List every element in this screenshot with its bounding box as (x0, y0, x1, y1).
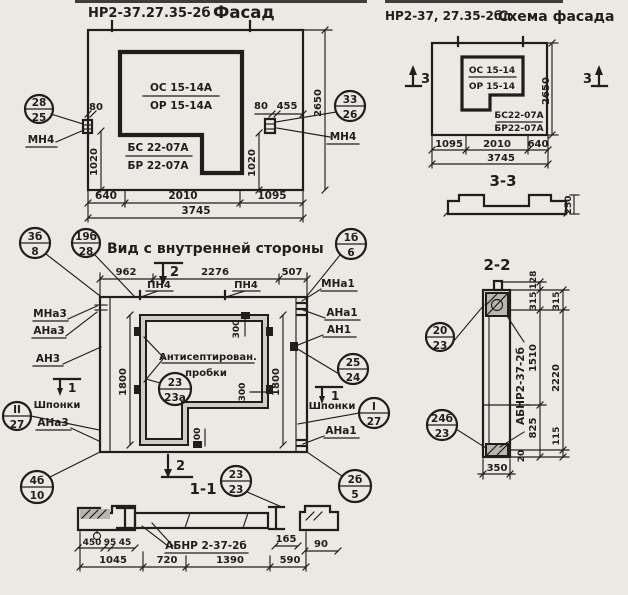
leader (307, 452, 342, 476)
dim-1020-left: 1020 (89, 148, 100, 176)
leader (66, 312, 97, 336)
svg-text:II: II (13, 404, 21, 416)
leader (71, 428, 99, 441)
svg-text:27: 27 (367, 416, 382, 428)
opening-mark-bottom: ОР 15-14А (150, 100, 213, 112)
arrow-up-icon (409, 65, 417, 75)
scan-streaks (75, 0, 563, 3)
svg-text:23: 23 (433, 340, 448, 352)
leader (63, 347, 101, 364)
dim-2650-scheme: 2650 (541, 77, 552, 105)
label-an1: АН1 (327, 324, 351, 336)
dim-450: 450 (83, 538, 102, 548)
dim-128: 128 (529, 271, 539, 290)
dim-300: 300 (238, 383, 248, 402)
dim-2010-scheme: 2010 (483, 139, 511, 150)
label-ana1-bottom: АНа1 (325, 425, 356, 437)
svg-text:8: 8 (31, 246, 38, 258)
dim-315-inner: 315 (529, 292, 539, 311)
svg-text:28: 28 (32, 97, 47, 109)
svg-text:1б: 1б (344, 232, 359, 244)
label-shponki-left: Шпонки (34, 400, 81, 411)
scheme-panel-mark-bottom: БР22-07А (494, 124, 543, 134)
dim-1045: 1045 (99, 555, 127, 566)
scheme-panel-mark-top: БС22-07А (494, 111, 543, 121)
svg-text:19б: 19б (75, 231, 97, 243)
svg-text:3б: 3б (28, 231, 43, 243)
arrow-up-icon (595, 65, 603, 75)
facade-title-code: НР2-37.27.35-2б (88, 6, 211, 21)
svg-text:26: 26 (343, 109, 358, 121)
frame-clip (134, 327, 141, 336)
svg-text:6: 6 (347, 247, 354, 259)
label-mna1: МНа1 (321, 278, 355, 290)
svg-text:2: 2 (170, 265, 179, 280)
inner-opening-frame (140, 315, 268, 445)
leader (453, 305, 484, 342)
leader (146, 379, 160, 383)
label-ana3-bottom: АНа3 (37, 417, 68, 429)
callout-24b-23: 24б 23 (427, 410, 486, 448)
dim-2276: 2276 (201, 267, 229, 278)
dim-1800-right: 1800 (271, 368, 282, 396)
svg-text:25: 25 (346, 357, 361, 369)
note-antiseptic: Антисептирован. (159, 352, 257, 363)
svg-text:23: 23 (229, 469, 244, 481)
callout-28-25: 28 25 (25, 95, 83, 124)
dim-95: 95 (104, 538, 117, 548)
facade-drawing: НР2-37.27.35-2б Фасад ОС 15-14А ОР 15-14… (25, 3, 365, 222)
i-beam-right (269, 507, 284, 529)
panel-mark-bottom: БР 22-07А (127, 160, 189, 172)
i-beam-left (117, 508, 133, 528)
frame-clip (266, 327, 273, 336)
pn4-label-right: ПН4 (234, 280, 258, 291)
right-end-block (300, 506, 338, 530)
section-2-2-title: 2-2 (483, 256, 510, 274)
facade-opening (120, 52, 242, 173)
dim-20: 20 (517, 450, 527, 463)
bottom-joint-block (486, 444, 508, 456)
pn4-label-left: ПН4 (147, 280, 171, 291)
dim-3745: 3745 (181, 205, 210, 217)
svg-text:25: 25 (32, 112, 47, 124)
section-3-3-title: 3-3 (489, 172, 516, 190)
dim-80-right: 80 (254, 101, 268, 112)
svg-text:20: 20 (433, 325, 448, 337)
svg-text:23: 23 (168, 377, 183, 389)
svg-text:2б: 2б (348, 474, 363, 486)
svg-text:23а: 23а (164, 392, 186, 404)
label-mna3: МНа3 (33, 308, 67, 320)
callout-20-23: 20 23 (426, 305, 484, 352)
svg-text:I: I (372, 401, 376, 413)
svg-text:24: 24 (346, 372, 361, 384)
label-shponki-right: Шпонки (309, 401, 356, 412)
label-abnr: АБНР 2-37-2б (165, 540, 247, 552)
dim-1095: 1095 (257, 190, 286, 202)
section-1-1: 450 95 45 АБНР 2-37-2б 165 90 1045 720 1… (75, 506, 341, 571)
svg-text:1: 1 (68, 381, 76, 395)
dim-825: 825 (528, 418, 539, 439)
panel-mark-top: БС 22-07А (127, 142, 189, 154)
leader (68, 306, 97, 319)
label-ana1-top: АНа1 (326, 307, 357, 319)
inner-view-title: Вид с внутренней стороны (107, 241, 324, 257)
note-plugs: пробки (185, 367, 227, 379)
leader (298, 335, 323, 345)
inner-view: 3б 8 19б 28 Вид с внутренней стороны 1б … (3, 228, 389, 507)
callout-19b-28: 19б 28 (72, 229, 134, 296)
section-marker-3-left: 3 (406, 65, 430, 87)
anchor-mn4-right (265, 119, 275, 133)
leader (296, 348, 339, 374)
anchor-label-mn4-left: МН4 (28, 134, 55, 146)
label-an3: АН3 (36, 353, 60, 365)
svg-text:23: 23 (229, 484, 244, 496)
dim-350: 350 (487, 463, 508, 474)
dim-1390: 1390 (216, 555, 244, 566)
dim-962: 962 (116, 267, 137, 278)
scheme-opening-mark-top: ОС 15-14 (469, 66, 515, 76)
callout-23-23: 23 23 (221, 466, 282, 507)
dim-300: 300 (193, 428, 203, 447)
section-3-3-profile (448, 195, 566, 214)
dim-1510: 1510 (528, 344, 539, 372)
dim-90: 90 (314, 539, 328, 550)
drawing-sheet: НР2-37.27.35-2б Фасад ОС 15-14А ОР 15-14… (0, 0, 628, 595)
dim-165: 165 (276, 534, 297, 545)
scheme-opening-mark-bottom: ОР 15-14 (469, 82, 515, 92)
dim-2010: 2010 (168, 190, 197, 202)
svg-text:23: 23 (435, 428, 450, 440)
section-marker-2-bottom: 2 (162, 455, 192, 478)
section-marker-1-left: 1 (54, 379, 80, 396)
scheme-title-code: НР2-37, 27.35-2бл (385, 9, 511, 23)
dim-1095-scheme: 1095 (435, 139, 463, 150)
dim-2650: 2650 (313, 89, 324, 117)
dim-590: 590 (280, 555, 301, 566)
dim-250: 250 (564, 196, 574, 215)
svg-text:3: 3 (421, 72, 430, 87)
dim-640-scheme: 640 (528, 139, 549, 150)
dim-455: 455 (277, 101, 298, 112)
svg-text:4б: 4б (30, 475, 45, 487)
section-2-2: 2-2 АБНР2-37-2б 20 23 (426, 256, 569, 479)
leader (46, 254, 100, 296)
blueprint-svg: НР2-37.27.35-2б Фасад ОС 15-14А ОР 15-14… (0, 0, 628, 595)
dim-45: 45 (119, 538, 132, 548)
dim-640: 640 (95, 190, 117, 202)
leader (56, 130, 84, 142)
dim-2220: 2220 (551, 364, 562, 392)
section-marker-3-right: 3 (583, 65, 607, 87)
svg-text:33: 33 (343, 94, 358, 106)
top-joint-block (486, 293, 508, 316)
callout-4b-10: 4б 10 (21, 452, 100, 503)
label-ana3-top: АНа3 (33, 325, 64, 337)
leader (500, 432, 524, 447)
svg-text:3: 3 (583, 72, 592, 87)
anchor-label-mn4-right: МН4 (330, 131, 357, 143)
opening-mark-top: ОС 15-14А (150, 82, 213, 94)
leader (50, 452, 100, 477)
frame-clip (134, 385, 141, 394)
dim-315-outer: 315 (552, 292, 562, 311)
svg-text:28: 28 (79, 246, 94, 258)
leader (247, 492, 282, 507)
facade-title: Фасад (213, 3, 275, 22)
svg-text:5: 5 (351, 489, 358, 501)
key-tab (290, 342, 298, 351)
facade-scheme: НР2-37, 27.35-2бл Схема фасада ОС 15-14 … (385, 9, 614, 216)
dim-720: 720 (157, 555, 178, 566)
dim-3745-scheme: 3745 (487, 153, 515, 164)
dim-1020-right: 1020 (247, 149, 258, 177)
svg-text:24б: 24б (431, 413, 453, 425)
callout-2b-5: 2б 5 (307, 452, 371, 502)
dim-507: 507 (282, 267, 303, 278)
dim-1800-left: 1800 (118, 368, 129, 396)
svg-text:27: 27 (10, 419, 25, 431)
leader (152, 523, 173, 546)
arrow-down-icon (57, 388, 63, 396)
leader (456, 429, 486, 448)
leader (51, 114, 83, 124)
dim-300: 300 (232, 320, 242, 339)
label-abnr-vertical: АБНР2-37-2б (515, 347, 527, 425)
svg-text:10: 10 (30, 490, 45, 502)
dim-115: 115 (552, 427, 562, 446)
scheme-title: Схема фасада (498, 9, 614, 25)
section-1-1-title: 1-1 (189, 480, 216, 498)
svg-text:2: 2 (176, 459, 185, 474)
